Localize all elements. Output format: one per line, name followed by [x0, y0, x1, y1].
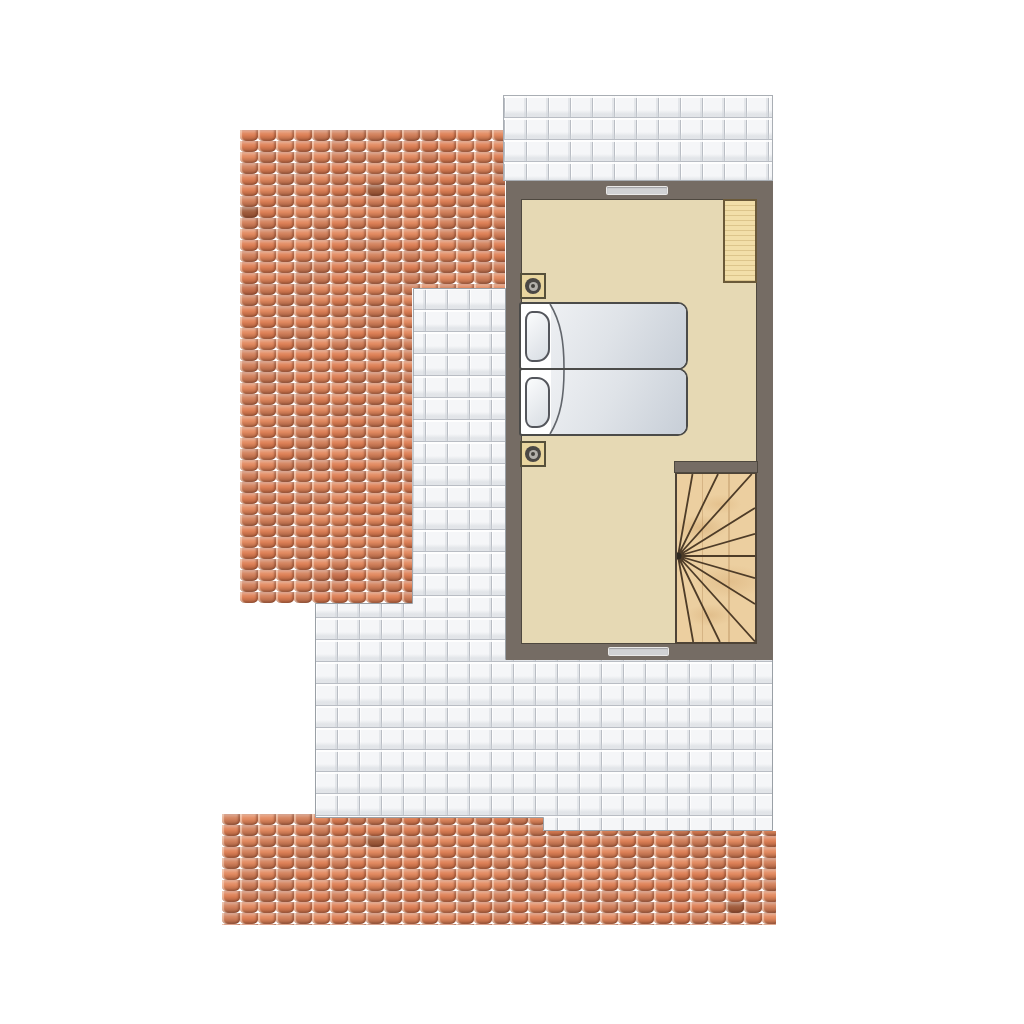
bedside-lamp-icon	[525, 446, 541, 462]
bedside-lamp-icon	[525, 278, 541, 294]
pillow	[525, 377, 550, 428]
window-top	[607, 187, 667, 194]
window-bottom	[609, 648, 668, 655]
duvet	[551, 304, 686, 368]
staircase	[675, 472, 757, 644]
floorplan-canvas	[0, 0, 1024, 1024]
upper-terrace-tiles	[503, 95, 773, 181]
nightstand-top	[520, 273, 546, 299]
nightstand-bottom	[520, 441, 546, 467]
duvet-fold-line	[547, 304, 569, 368]
pillow	[525, 311, 550, 362]
duvet-fold-line	[547, 370, 569, 434]
single-bed-1	[519, 302, 688, 370]
stair-partition-wall	[674, 461, 758, 473]
wardrobe	[723, 199, 757, 283]
single-bed-2	[519, 368, 688, 436]
beds-group	[519, 302, 688, 438]
stair-step-lines	[677, 474, 755, 642]
duvet	[551, 370, 686, 434]
